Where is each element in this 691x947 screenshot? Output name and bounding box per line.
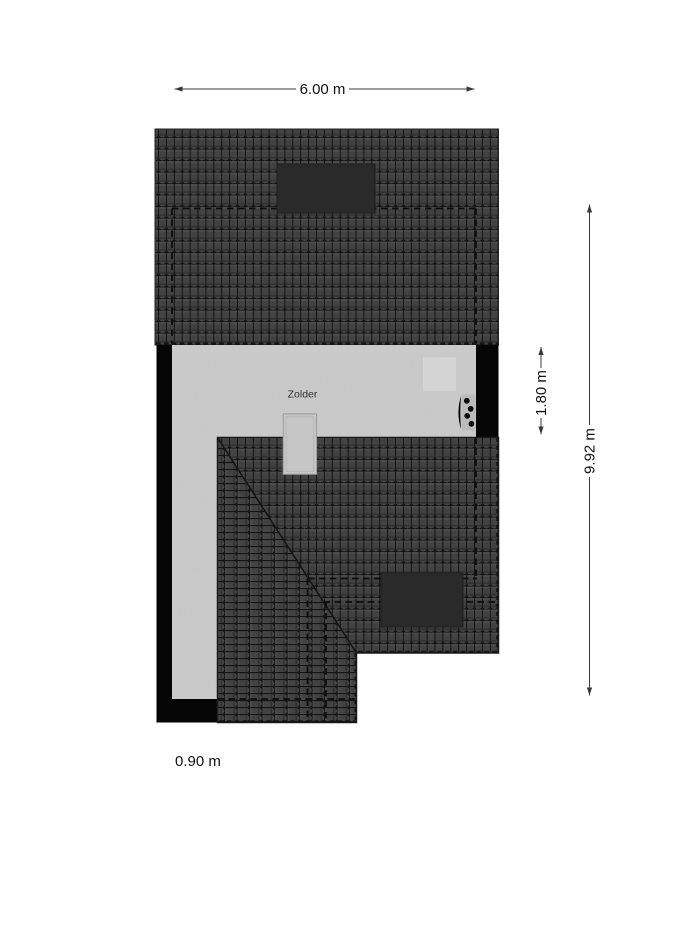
svg-text:0.90 m: 0.90 m	[175, 753, 221, 770]
svg-text:9.92 m: 9.92 m	[582, 428, 599, 474]
svg-text:1.80 m: 1.80 m	[533, 370, 550, 416]
svg-text:Zolder: Zolder	[288, 389, 318, 401]
svg-text:6.00 m: 6.00 m	[300, 81, 346, 98]
